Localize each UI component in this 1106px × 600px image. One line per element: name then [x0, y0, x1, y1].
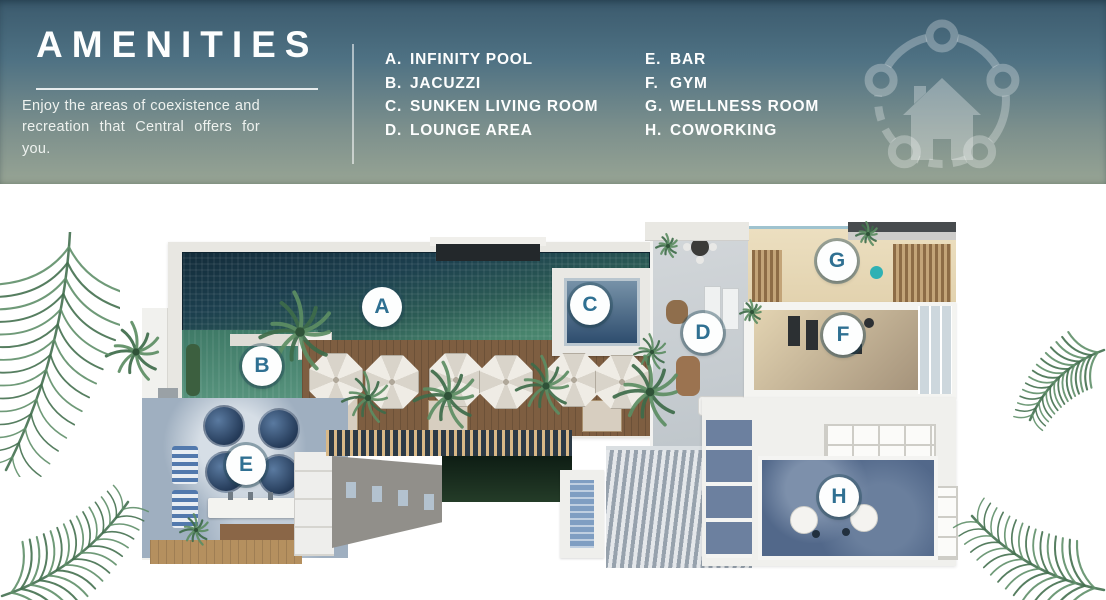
stool	[842, 528, 850, 536]
palm-frond-icon	[948, 468, 1106, 600]
marker-letter: E	[239, 453, 253, 477]
marker-letter: A	[374, 295, 389, 319]
building-facade	[332, 456, 442, 548]
palm-tree-icon	[414, 362, 482, 430]
palm-tree-icon	[740, 300, 764, 324]
marker-letter: G	[829, 249, 845, 273]
amenity-marker-B: B	[242, 346, 282, 386]
floor-plan: ABCDEFGH	[0, 0, 1106, 600]
gym-equipment	[788, 316, 800, 346]
dark-roof	[436, 244, 540, 261]
bar-tap	[268, 492, 273, 500]
palm-frond-icon	[0, 232, 120, 477]
palm-tree-icon	[180, 514, 212, 546]
slat-fence	[326, 430, 572, 456]
gym-equipment	[806, 320, 818, 350]
marker-letter: B	[254, 354, 269, 378]
stairwell	[560, 470, 604, 558]
amenity-marker-G: G	[817, 241, 857, 281]
palm-frond-icon	[0, 458, 160, 600]
window	[424, 494, 434, 510]
bar-table	[203, 405, 245, 447]
palm-tree-icon	[656, 234, 680, 258]
wood-slat-screen	[752, 250, 782, 304]
amenities-page: AMENITIES Enjoy the areas of coexistence…	[0, 0, 1106, 600]
lounge-chair	[722, 288, 739, 330]
stool	[812, 530, 820, 538]
corridor	[706, 420, 752, 558]
palm-frond-icon	[1000, 298, 1106, 448]
palm-tree-icon	[634, 334, 670, 370]
marker-letter: D	[695, 321, 710, 345]
gym-equipment	[864, 318, 874, 328]
amenity-marker-E: E	[226, 445, 266, 485]
amenity-marker-A: A	[362, 287, 402, 327]
bar-tap	[228, 492, 233, 500]
marker-letter: F	[837, 323, 850, 347]
armchair	[666, 300, 688, 324]
palm-tree-icon	[856, 222, 880, 246]
bar-counter	[208, 498, 302, 518]
window	[372, 486, 382, 502]
bar-wood-deck	[150, 540, 302, 564]
glass-wall	[918, 306, 952, 394]
bar-table	[258, 408, 300, 450]
amenity-marker-C: C	[570, 285, 610, 325]
shelving-unit	[294, 452, 334, 556]
window	[346, 482, 356, 498]
planter	[186, 344, 200, 396]
window	[398, 490, 408, 506]
lounge-chair	[172, 446, 198, 484]
lower-garden	[442, 456, 572, 502]
bar-tap	[248, 492, 253, 500]
wood-slat-screen	[893, 244, 951, 302]
amenity-marker-D: D	[683, 313, 723, 353]
marker-letter: C	[582, 293, 597, 317]
amenity-marker-F: F	[823, 315, 863, 355]
palm-tree-icon	[516, 356, 576, 416]
glass-door	[570, 480, 594, 548]
amenity-marker-H: H	[819, 477, 859, 517]
exercise-ball	[870, 266, 883, 279]
marker-letter: H	[831, 485, 846, 509]
palm-tree-icon	[342, 372, 394, 424]
